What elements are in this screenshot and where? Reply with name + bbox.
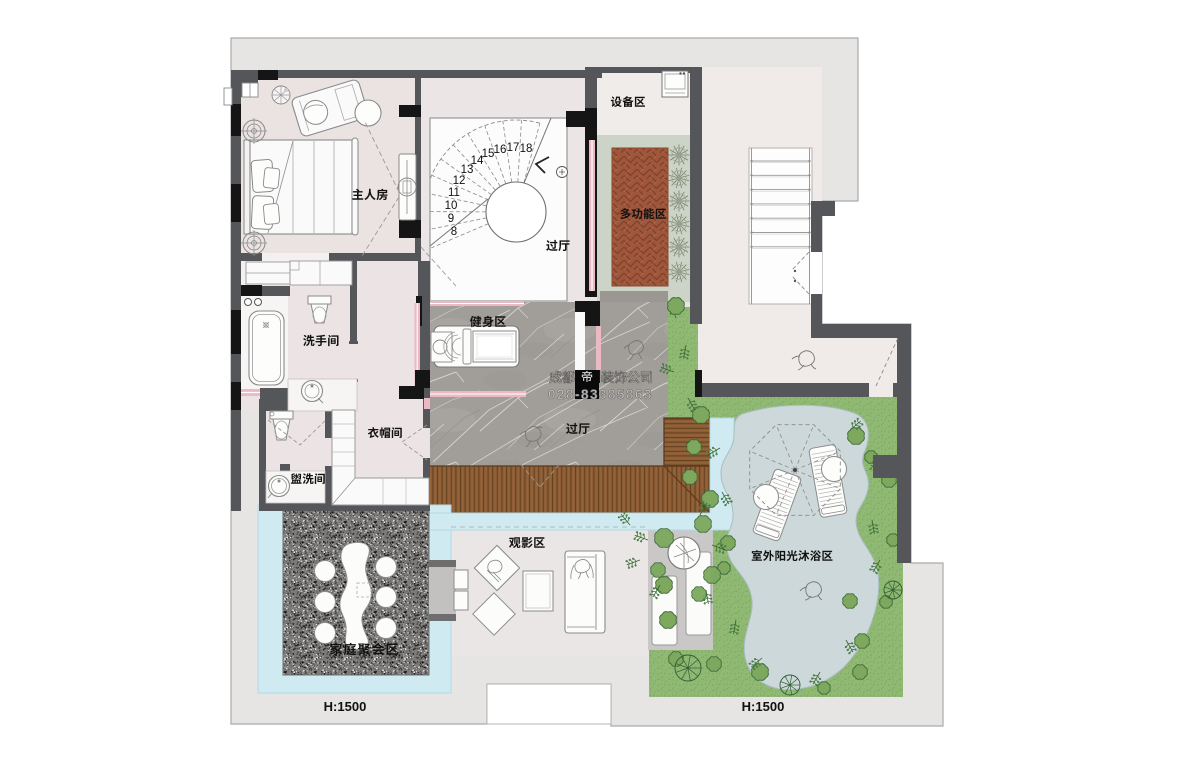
svg-text:11: 11 [448,187,460,199]
svg-text:18: 18 [520,143,533,155]
svg-text:H:1500: H:1500 [324,699,367,714]
svg-text:H:1500: H:1500 [742,699,785,714]
svg-text:15: 15 [482,148,495,160]
svg-text:028-83385863: 028-83385863 [548,387,653,402]
svg-text:12: 12 [453,175,466,187]
svg-text:8: 8 [451,226,457,238]
svg-text:10: 10 [445,200,458,212]
svg-text:17: 17 [507,142,520,154]
svg-text:9: 9 [448,213,454,225]
svg-text:16: 16 [494,144,507,156]
